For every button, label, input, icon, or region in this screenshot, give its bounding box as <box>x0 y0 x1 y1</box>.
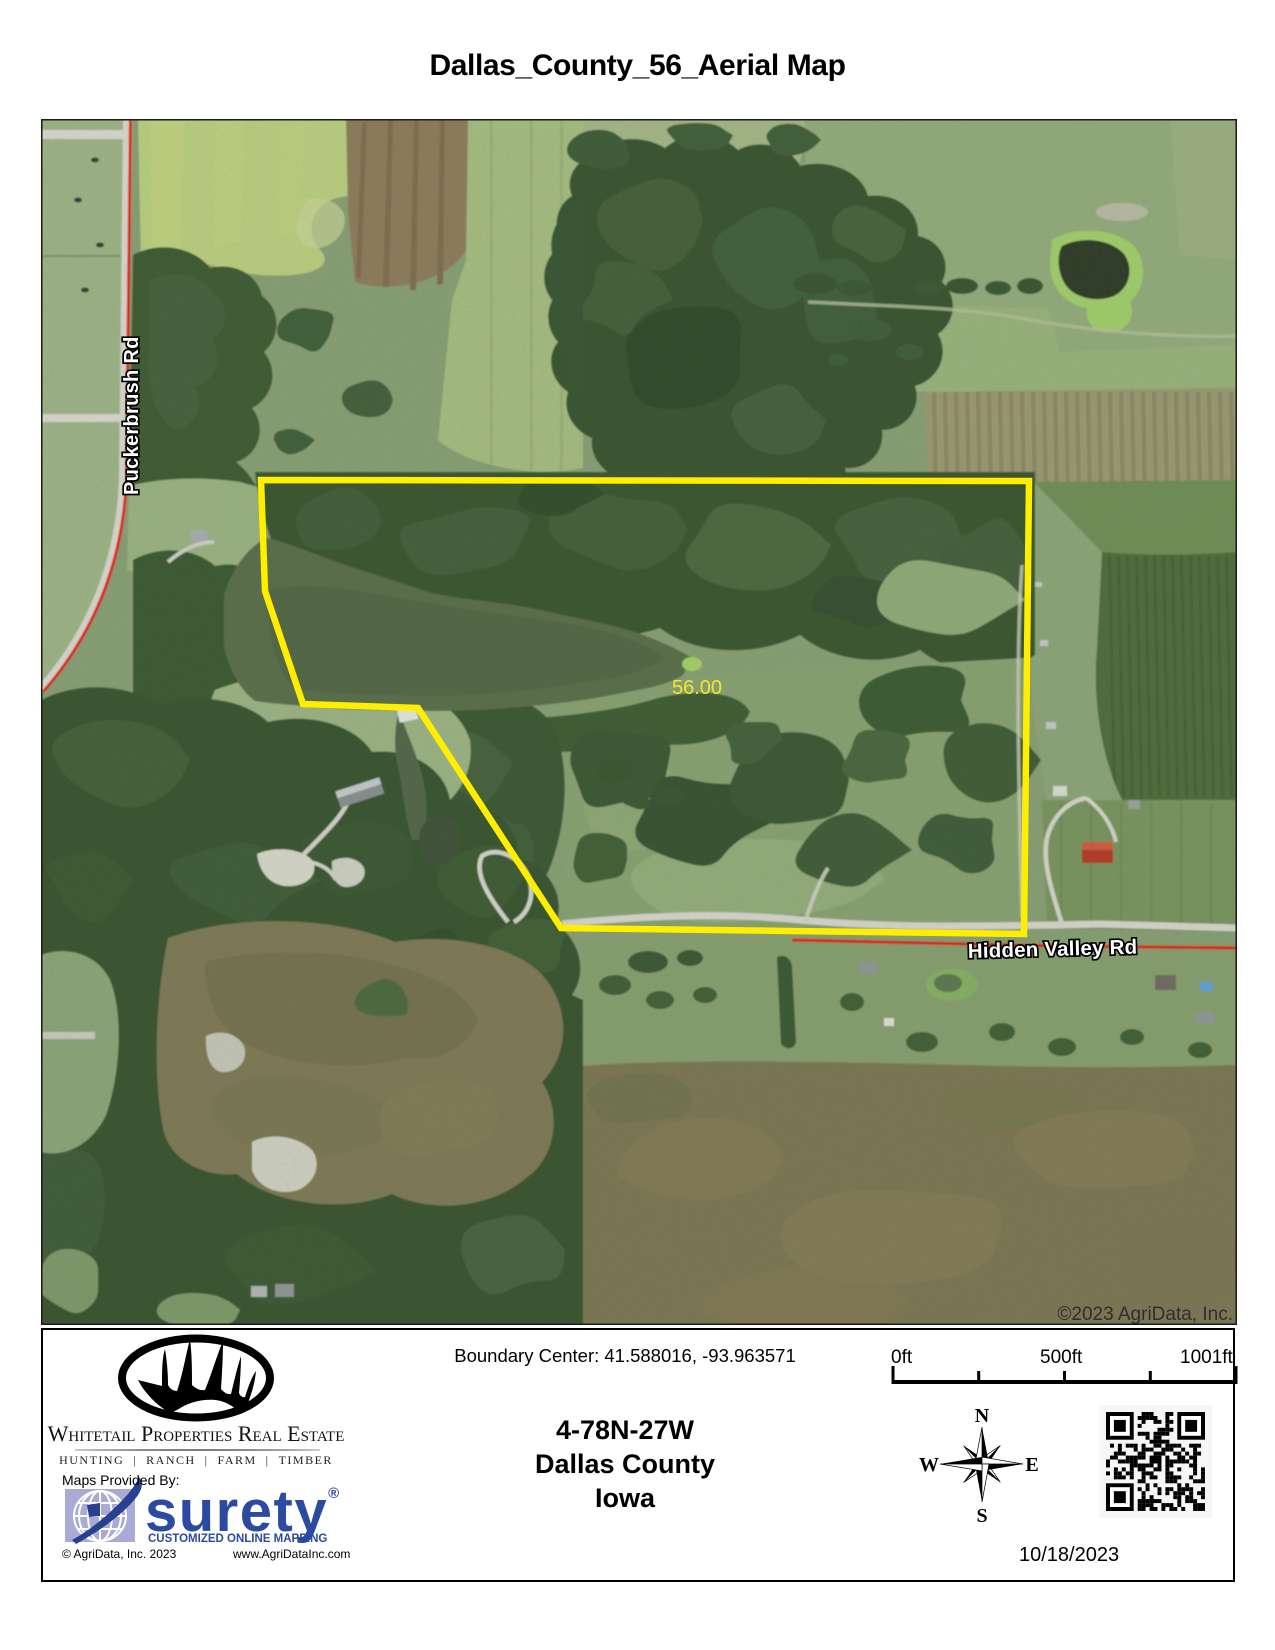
svg-text:S: S <box>976 1505 987 1527</box>
svg-text:W: W <box>919 1454 939 1476</box>
svg-text:E: E <box>1025 1454 1038 1476</box>
svg-text:N: N <box>975 1405 990 1427</box>
